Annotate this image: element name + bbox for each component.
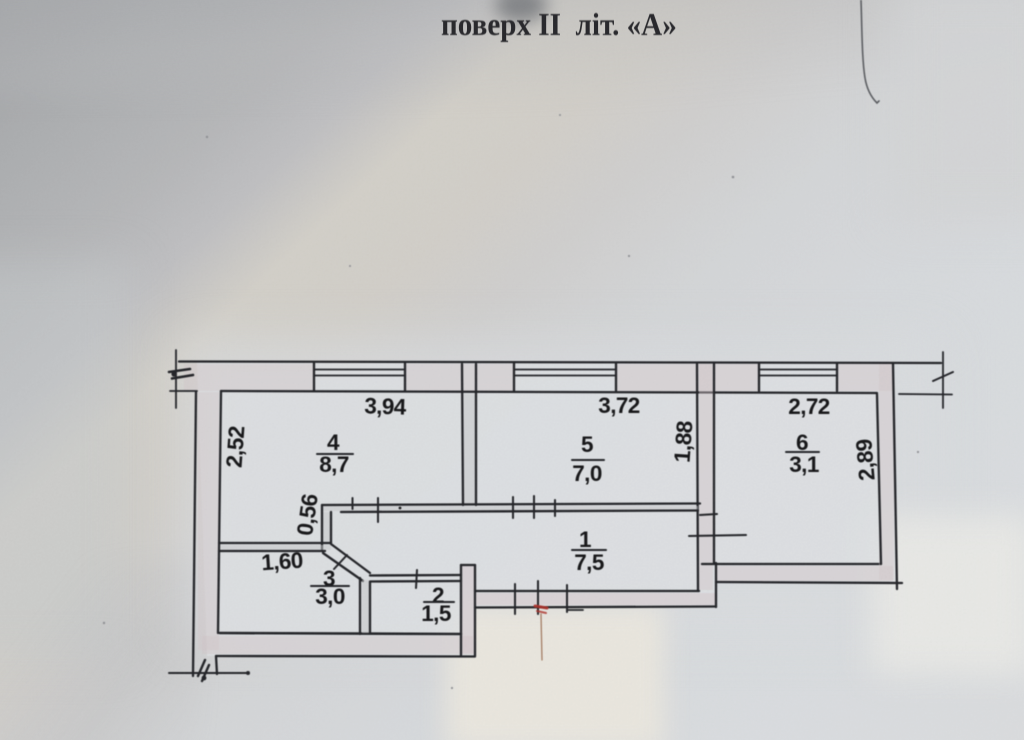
svg-text:7,0: 7,0 [572, 461, 602, 486]
svg-text:5: 5 [581, 432, 593, 457]
svg-text:8,7: 8,7 [319, 452, 349, 477]
svg-text:1,60: 1,60 [260, 548, 303, 576]
svg-text:2,89: 2,89 [851, 438, 880, 481]
svg-text:3,94: 3,94 [364, 393, 407, 419]
svg-text:3,0: 3,0 [315, 584, 345, 609]
svg-text:2,72: 2,72 [788, 394, 829, 419]
svg-text:3,72: 3,72 [598, 393, 639, 418]
svg-text:1: 1 [579, 527, 591, 552]
svg-text:7,5: 7,5 [574, 550, 604, 575]
svg-text:1,5: 1,5 [421, 601, 451, 626]
svg-text:2,52: 2,52 [222, 425, 250, 468]
svg-text:1,88: 1,88 [670, 420, 698, 463]
svg-text:3,1: 3,1 [789, 452, 819, 477]
